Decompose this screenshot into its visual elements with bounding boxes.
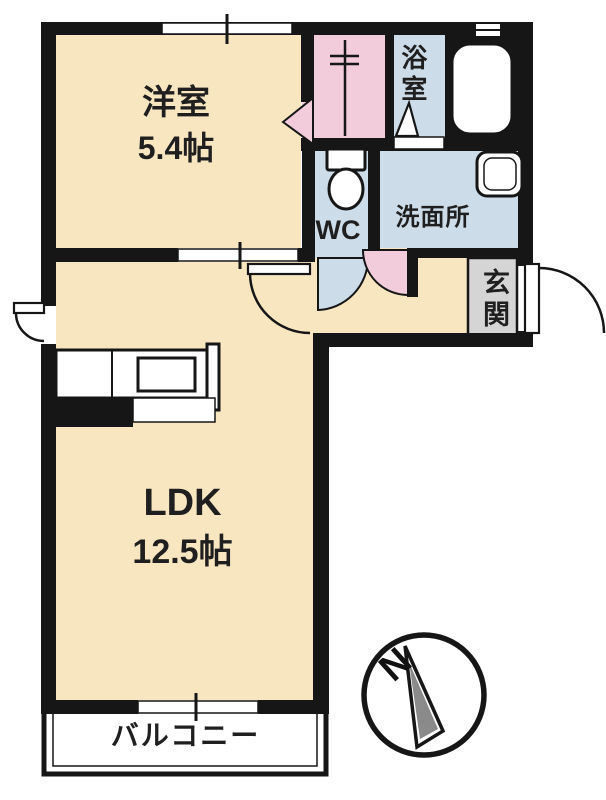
room-label-wc: WC bbox=[300, 215, 376, 246]
ldk-name: LDK bbox=[143, 482, 221, 524]
wall-closet-bath bbox=[385, 22, 394, 148]
room-ldk-floor bbox=[56, 262, 313, 700]
wall-closet-left bbox=[301, 22, 314, 102]
entrance-door-arc bbox=[539, 268, 604, 333]
ldk-door-leaf bbox=[248, 264, 310, 274]
window-western-hall bbox=[178, 249, 298, 261]
floor-plan: N 洋室 5.4帖 LDK 12.5帖 WC 洗面所 浴室 玄関 バルコニー bbox=[0, 0, 606, 800]
room-label-bath: 浴室 bbox=[397, 44, 427, 106]
bathtub bbox=[452, 44, 512, 134]
closet-floor bbox=[313, 35, 385, 138]
wall-ldk-bottom-right bbox=[258, 700, 329, 714]
wall-western-bottom-left bbox=[41, 248, 178, 262]
kitchen-counter-lower bbox=[133, 398, 215, 422]
wall-hall-bottom bbox=[313, 333, 533, 347]
bath-vent-slot-2 bbox=[476, 31, 500, 36]
wall-ldk-bottom-left bbox=[41, 700, 138, 714]
room-label-western: 洋室 5.4帖 bbox=[66, 84, 286, 167]
room-label-entrance: 玄関 bbox=[478, 268, 509, 332]
room-label-ldk: LDK 12.5帖 bbox=[75, 482, 290, 572]
toilet-bowl bbox=[329, 169, 363, 209]
western-size: 5.4帖 bbox=[66, 130, 286, 167]
bath-vent-slot-1 bbox=[476, 24, 500, 29]
kitchen-sink bbox=[138, 358, 195, 391]
bath-threshold bbox=[394, 137, 444, 149]
service-door-leaf bbox=[14, 303, 44, 313]
toilet-tank bbox=[327, 149, 365, 170]
room-label-washroom: 洗面所 bbox=[373, 204, 493, 232]
window-ldk-balcony bbox=[138, 701, 258, 713]
service-door-arc bbox=[16, 313, 44, 341]
entrance-door-leaf bbox=[525, 264, 539, 333]
compass: N bbox=[364, 635, 484, 755]
wall-left-upper bbox=[41, 22, 56, 306]
wall-washroom-bottom bbox=[410, 248, 533, 258]
washroom-sink-basin bbox=[484, 158, 516, 190]
western-name: 洋室 bbox=[142, 84, 210, 122]
ldk-size: 12.5帖 bbox=[75, 533, 290, 572]
wall-ldk-right bbox=[313, 333, 329, 714]
wall-kitchen-stub bbox=[41, 398, 133, 427]
room-label-balcony: バルコニー bbox=[58, 720, 313, 752]
